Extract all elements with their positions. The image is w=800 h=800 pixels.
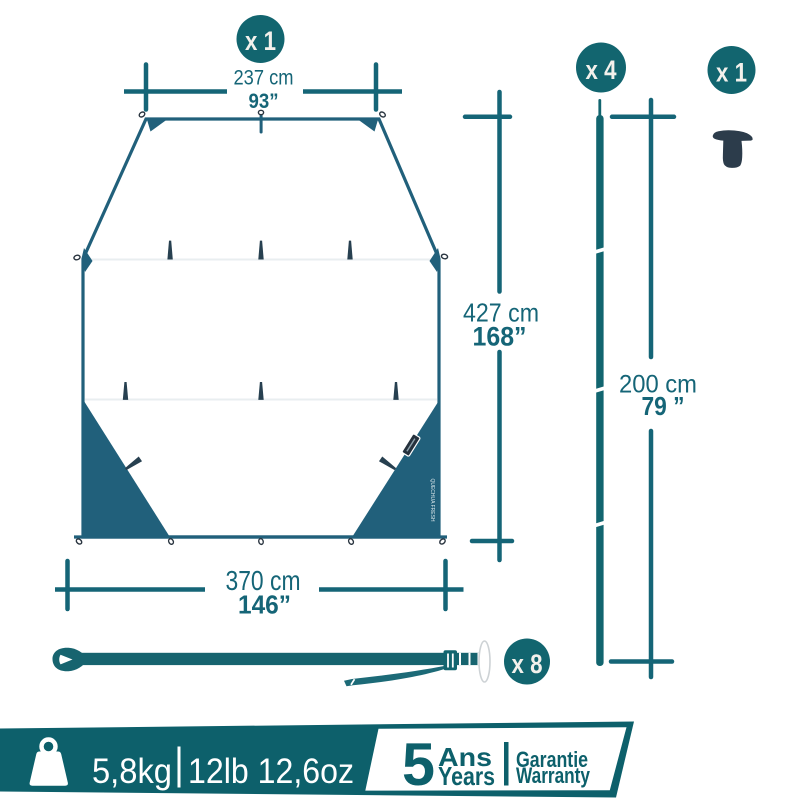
svg-text:5: 5 bbox=[402, 731, 435, 798]
svg-text:x 8: x 8 bbox=[512, 649, 543, 679]
svg-text:146”: 146” bbox=[238, 590, 291, 620]
svg-text:237 cm: 237 cm bbox=[234, 67, 294, 90]
svg-text:x 1: x 1 bbox=[716, 58, 747, 88]
svg-text:QUECHUA FRESH: QUECHUA FRESH bbox=[429, 478, 435, 521]
svg-text:168”: 168” bbox=[473, 322, 527, 352]
svg-text:79 ”: 79 ” bbox=[642, 391, 685, 421]
svg-text:Years: Years bbox=[438, 761, 495, 791]
svg-text:12lb 12,6oz: 12lb 12,6oz bbox=[188, 752, 354, 791]
svg-text:93”: 93” bbox=[249, 90, 279, 113]
svg-text:x 1: x 1 bbox=[245, 26, 276, 56]
svg-text:Warranty: Warranty bbox=[516, 763, 591, 788]
svg-text:5,8kg: 5,8kg bbox=[92, 752, 172, 791]
svg-text:x 4: x 4 bbox=[586, 55, 617, 85]
